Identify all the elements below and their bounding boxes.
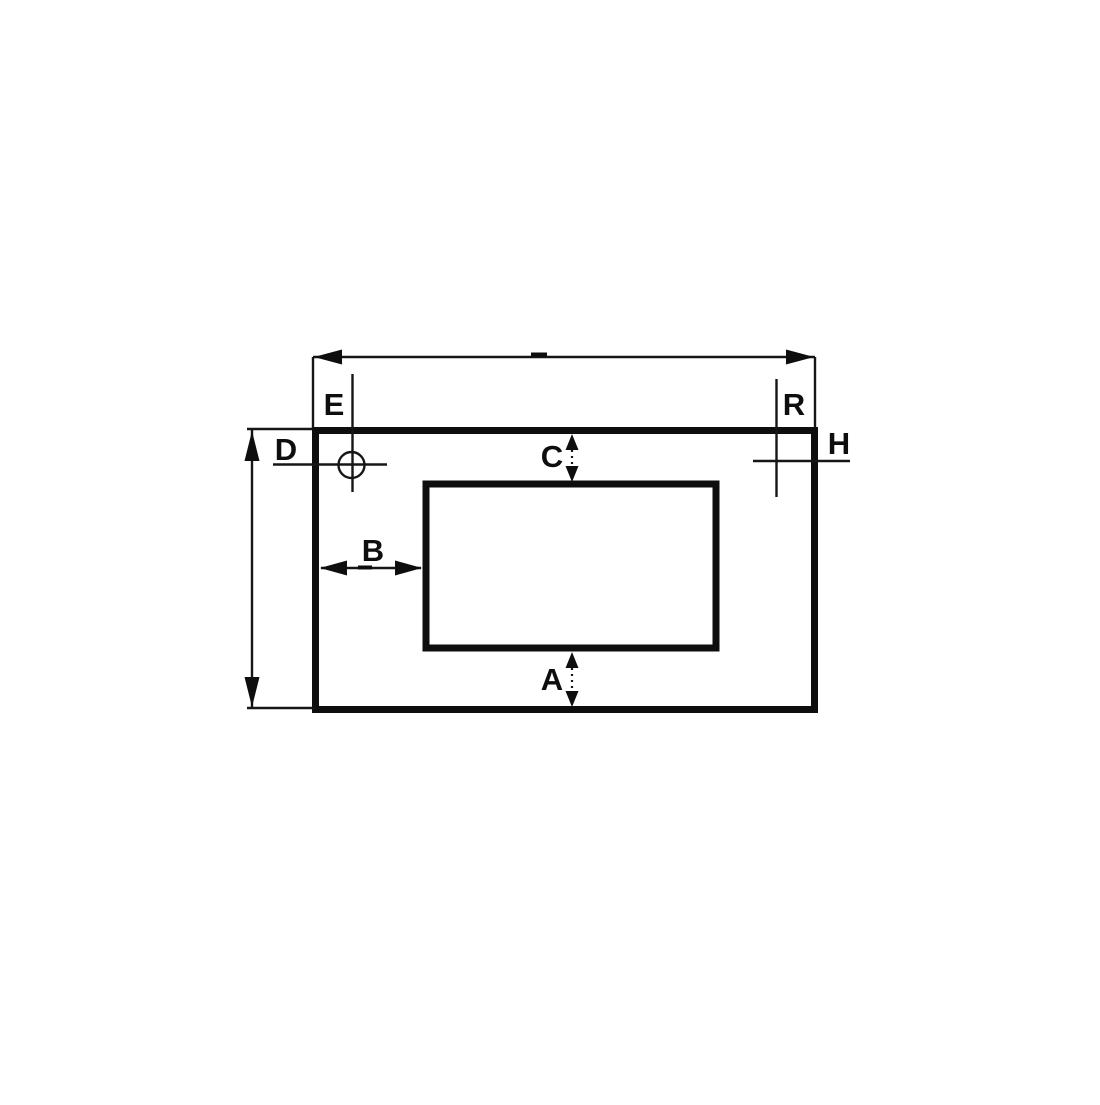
drawing-canvas: E R D H C B A	[0, 0, 1100, 1100]
left-dimension-up-arrow-icon	[245, 431, 260, 461]
top-dimension-left-arrow-icon	[314, 350, 342, 365]
b-right-arrow-icon	[395, 561, 422, 576]
label-B: B	[362, 533, 384, 568]
dimension-drawing: E R D H C B A	[0, 0, 1100, 1100]
label-E: E	[324, 387, 345, 422]
c-down-arrow-icon	[566, 466, 579, 482]
b-left-arrow-icon	[320, 561, 347, 576]
label-R: R	[783, 387, 805, 422]
a-up-arrow-icon	[566, 652, 579, 668]
label-A: A	[541, 662, 563, 697]
label-C: C	[541, 439, 563, 474]
inner-cutout-rect	[426, 484, 716, 648]
label-H: H	[828, 426, 850, 461]
a-down-arrow-icon	[566, 691, 579, 707]
top-dimension-mid-tick	[531, 353, 547, 358]
label-D: D	[275, 432, 297, 467]
top-dimension-right-arrow-icon	[786, 350, 814, 365]
outer-plate-rect	[316, 431, 815, 710]
left-dimension-down-arrow-icon	[245, 677, 260, 707]
c-up-arrow-icon	[566, 434, 579, 450]
